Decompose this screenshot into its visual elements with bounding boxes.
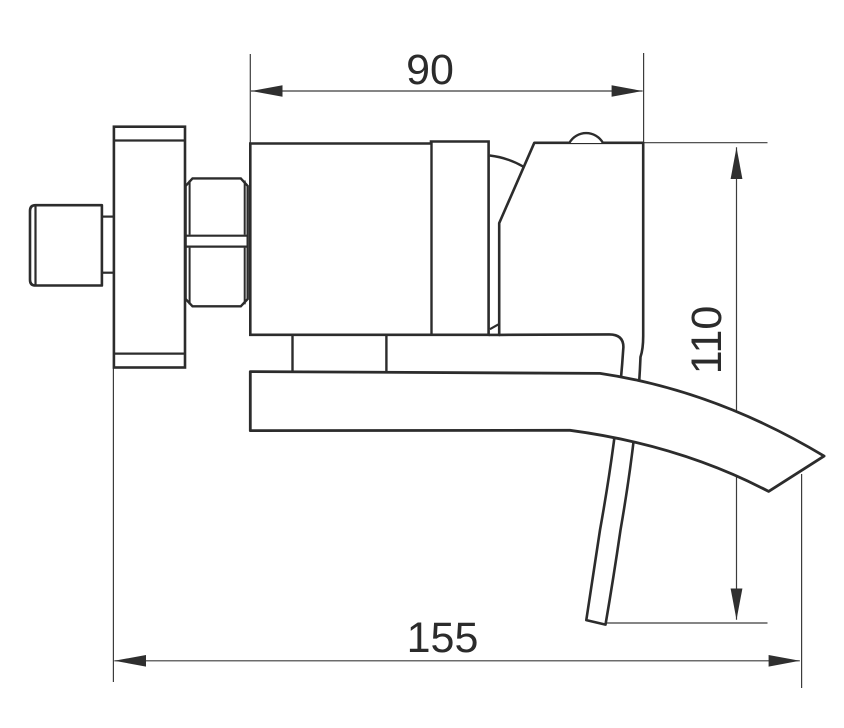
svg-text:90: 90 [406,46,454,94]
svg-text:155: 155 [407,614,479,662]
svg-text:110: 110 [683,306,731,375]
